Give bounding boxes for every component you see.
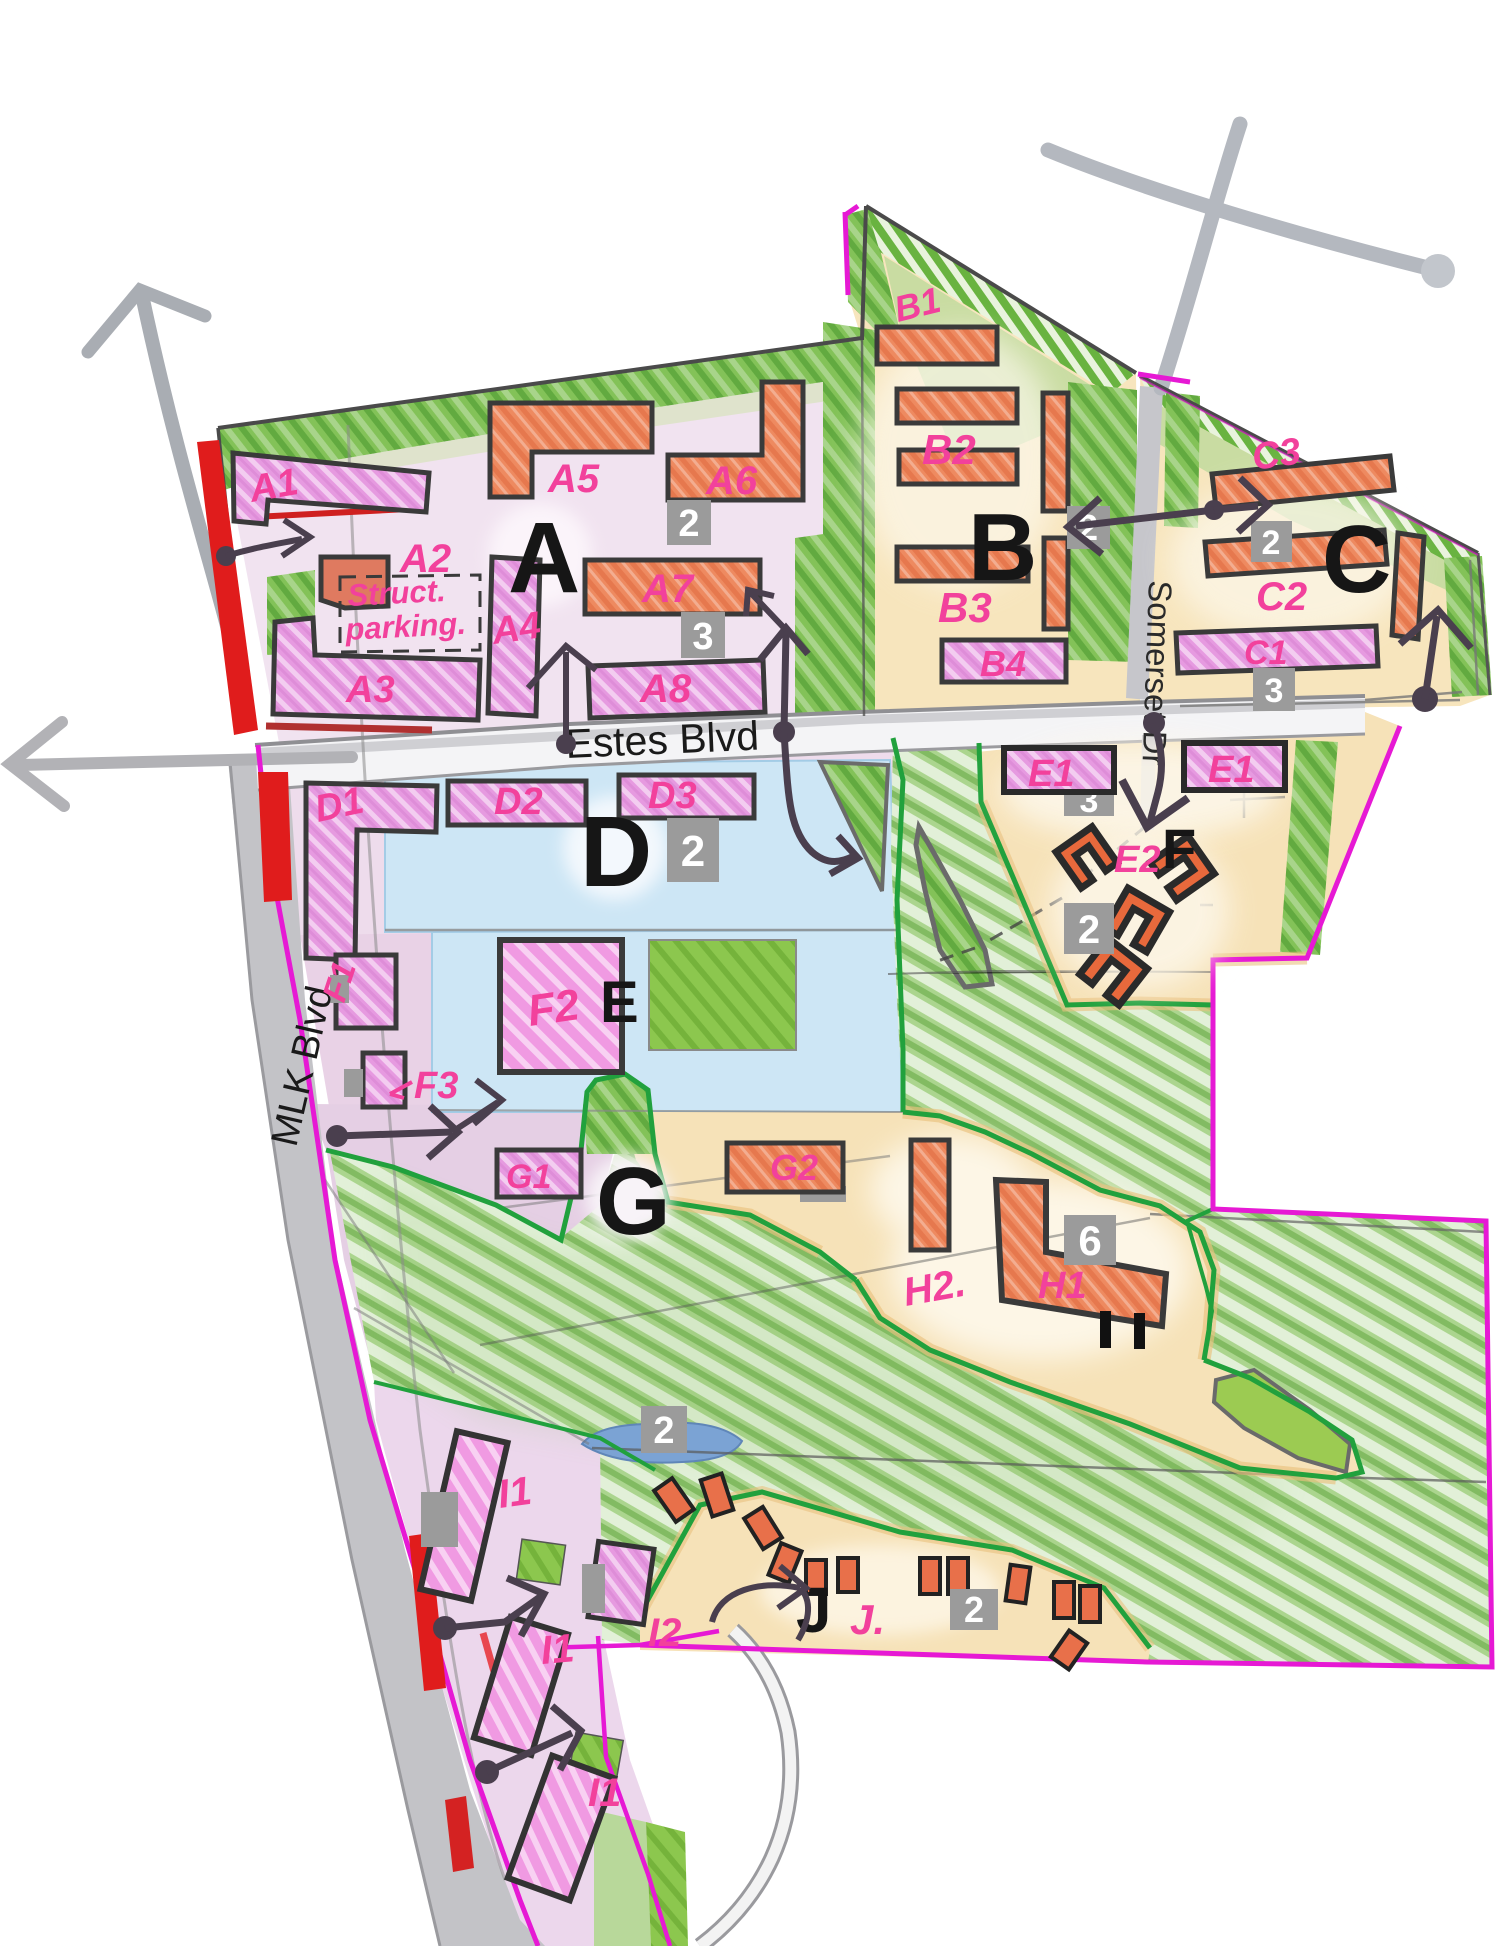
svg-text:A6: A6 xyxy=(705,459,758,503)
svg-text:F2: F2 xyxy=(525,980,583,1036)
svg-text:E1: E1 xyxy=(1028,753,1074,795)
svg-text:B4: B4 xyxy=(980,643,1026,684)
svg-text:2: 2 xyxy=(964,1589,984,1630)
svg-text:F: F xyxy=(1162,817,1196,880)
svg-text:J.: J. xyxy=(850,1596,885,1643)
svg-text:I1: I1 xyxy=(539,1626,576,1673)
svg-text:E: E xyxy=(600,970,639,1035)
svg-text:2: 2 xyxy=(678,503,699,545)
svg-text:parking.: parking. xyxy=(344,606,467,647)
svg-text:A1: A1 xyxy=(245,461,301,511)
svg-text:B2: B2 xyxy=(922,426,976,473)
svg-text:2: 2 xyxy=(1078,908,1100,952)
svg-text:I2: I2 xyxy=(648,1611,681,1655)
svg-text:B3: B3 xyxy=(938,584,992,631)
svg-text:A3: A3 xyxy=(345,669,395,711)
svg-text:3: 3 xyxy=(692,616,713,658)
svg-text:A5: A5 xyxy=(547,457,600,501)
svg-text:A8: A8 xyxy=(639,667,692,711)
svg-text:G2: G2 xyxy=(770,1147,818,1188)
svg-text:3: 3 xyxy=(1265,672,1284,710)
svg-text:G1: G1 xyxy=(506,1158,551,1196)
svg-text:I1: I1 xyxy=(495,1469,534,1517)
svg-text:C3: C3 xyxy=(1249,431,1303,479)
svg-text:F3: F3 xyxy=(414,1065,458,1107)
svg-text:2: 2 xyxy=(1262,524,1281,562)
svg-text:A7: A7 xyxy=(641,567,695,611)
svg-text:A4: A4 xyxy=(488,605,543,653)
svg-text:C1: C1 xyxy=(1244,634,1287,672)
svg-text:2: 2 xyxy=(653,1410,674,1452)
svg-text:A: A xyxy=(508,502,580,614)
svg-text:D2: D2 xyxy=(494,781,543,823)
svg-text:2: 2 xyxy=(681,827,705,876)
svg-text:I1: I1 xyxy=(588,1771,621,1815)
svg-text:H1: H1 xyxy=(1038,1265,1087,1307)
svg-text:E2: E2 xyxy=(1114,839,1160,881)
svg-text:D: D xyxy=(580,796,652,908)
svg-text:G: G xyxy=(596,1148,671,1255)
svg-text:6: 6 xyxy=(1078,1217,1101,1264)
svg-text:Estes Blvd: Estes Blvd xyxy=(564,713,760,767)
svg-text:E1: E1 xyxy=(1208,749,1254,791)
svg-text:D3: D3 xyxy=(648,775,697,817)
svg-text:C2: C2 xyxy=(1256,575,1307,619)
svg-text:C: C xyxy=(1322,506,1391,613)
